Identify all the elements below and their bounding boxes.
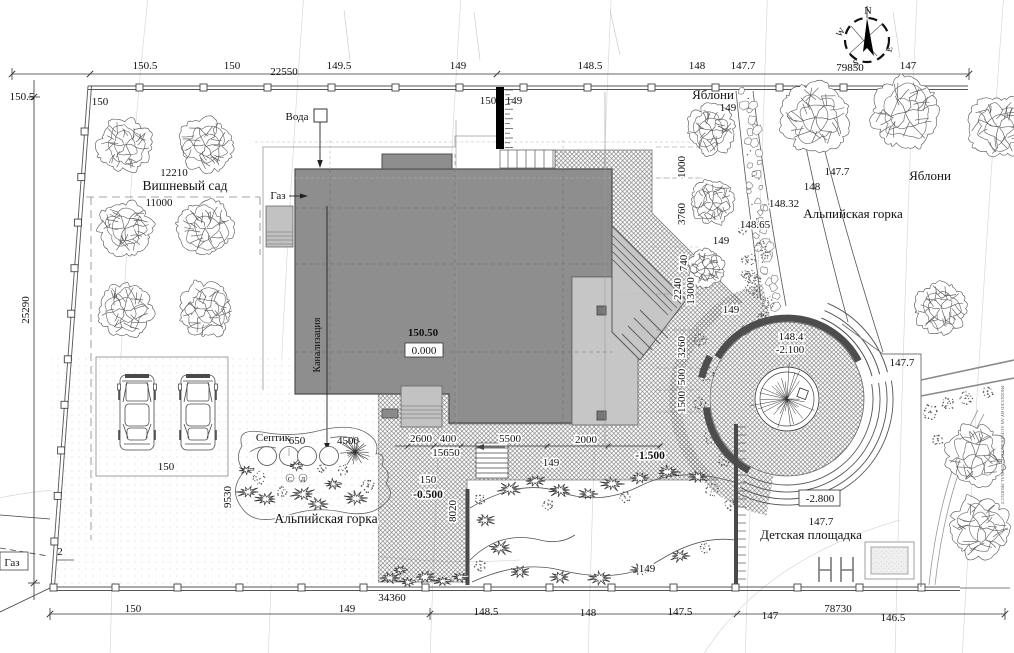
svg-text:2240: 2240 xyxy=(672,278,684,301)
svg-text:Газ: Газ xyxy=(4,557,19,569)
svg-text:148.5: 148.5 xyxy=(474,606,499,618)
svg-text:3760: 3760 xyxy=(676,203,688,226)
svg-text:78730: 78730 xyxy=(824,603,852,615)
svg-text:149: 149 xyxy=(506,95,523,107)
svg-text:149: 149 xyxy=(713,235,730,247)
svg-text:Яблони: Яблони xyxy=(909,168,951,183)
svg-text:Газ: Газ xyxy=(270,190,285,202)
svg-text:147.7: 147.7 xyxy=(731,60,756,72)
svg-text:0.000: 0.000 xyxy=(412,345,437,357)
svg-text:150: 150 xyxy=(420,474,437,486)
svg-text:149: 149 xyxy=(450,60,467,72)
svg-text:Альпийская горка: Альпийская горка xyxy=(803,206,903,221)
svg-text:150: 150 xyxy=(158,461,175,473)
svg-text:N: N xyxy=(864,6,871,17)
svg-text:148: 148 xyxy=(689,60,706,72)
svg-text:2: 2 xyxy=(57,546,63,558)
svg-text:147.7: 147.7 xyxy=(825,166,850,178)
svg-text:3260: 3260 xyxy=(676,336,688,359)
svg-text:Д: Д xyxy=(301,476,306,483)
svg-text:147: 147 xyxy=(900,60,917,72)
svg-text:150.5: 150.5 xyxy=(133,60,158,72)
svg-text:147.7: 147.7 xyxy=(890,357,915,369)
svg-text:15650: 15650 xyxy=(432,447,460,459)
svg-text:146.5: 146.5 xyxy=(881,612,906,624)
svg-text:11000: 11000 xyxy=(145,197,173,209)
svg-text:150.50: 150.50 xyxy=(408,327,439,339)
svg-text:150: 150 xyxy=(125,603,142,615)
svg-text:-2.800: -2.800 xyxy=(806,493,835,505)
svg-text:Альпийская горка: Альпийская горка xyxy=(274,511,377,526)
svg-text:2600: 2600 xyxy=(410,433,433,445)
svg-text:148.65: 148.65 xyxy=(740,219,771,231)
svg-text:1000: 1000 xyxy=(676,156,688,179)
svg-text:9530: 9530 xyxy=(222,486,234,509)
svg-text:13000: 13000 xyxy=(685,277,697,305)
svg-text:1500: 1500 xyxy=(676,391,688,414)
svg-text:148: 148 xyxy=(580,607,597,619)
svg-text:Вишневый сад: Вишневый сад xyxy=(143,178,228,193)
svg-text:22550: 22550 xyxy=(270,66,298,78)
svg-text:Яблони: Яблони xyxy=(692,87,734,102)
svg-text:PRODUCED BY AN AUTODESK EDUCAT: PRODUCED BY AN AUTODESK EDUCATIONAL PROD… xyxy=(1000,386,1005,505)
svg-text:149: 149 xyxy=(639,563,656,575)
svg-text:С: С xyxy=(288,476,292,483)
svg-text:25290: 25290 xyxy=(20,296,32,324)
svg-text:147.5: 147.5 xyxy=(668,606,693,618)
svg-text:148.4: 148.4 xyxy=(779,331,804,343)
svg-text:150.5: 150.5 xyxy=(10,91,35,103)
svg-text:-1.500: -1.500 xyxy=(635,450,665,462)
svg-text:650: 650 xyxy=(289,435,306,447)
svg-text:148.5: 148.5 xyxy=(578,60,603,72)
svg-text:Детская площадка: Детская площадка xyxy=(760,527,862,542)
svg-text:150: 150 xyxy=(480,95,497,107)
svg-text:8020: 8020 xyxy=(447,500,459,523)
svg-text:149: 149 xyxy=(339,603,356,615)
svg-text:149: 149 xyxy=(723,304,740,316)
svg-text:149: 149 xyxy=(543,457,560,469)
svg-text:2000: 2000 xyxy=(575,434,598,446)
svg-text:5500: 5500 xyxy=(499,433,522,445)
svg-text:500: 500 xyxy=(676,368,688,385)
svg-text:Вода: Вода xyxy=(286,111,309,123)
svg-text:149: 149 xyxy=(720,102,737,114)
svg-text:740: 740 xyxy=(678,254,690,271)
svg-text:148.32: 148.32 xyxy=(769,198,799,210)
svg-text:150: 150 xyxy=(92,96,109,108)
svg-text:Канализация: Канализация xyxy=(312,317,323,372)
svg-text:400: 400 xyxy=(440,433,457,445)
svg-text:147: 147 xyxy=(762,610,779,622)
svg-text:150: 150 xyxy=(224,60,241,72)
svg-text:-2.100: -2.100 xyxy=(776,344,805,356)
svg-text:-0.500: -0.500 xyxy=(413,489,443,501)
svg-text:149.5: 149.5 xyxy=(327,60,352,72)
svg-text:148: 148 xyxy=(804,181,821,193)
svg-text:34360: 34360 xyxy=(378,592,406,604)
